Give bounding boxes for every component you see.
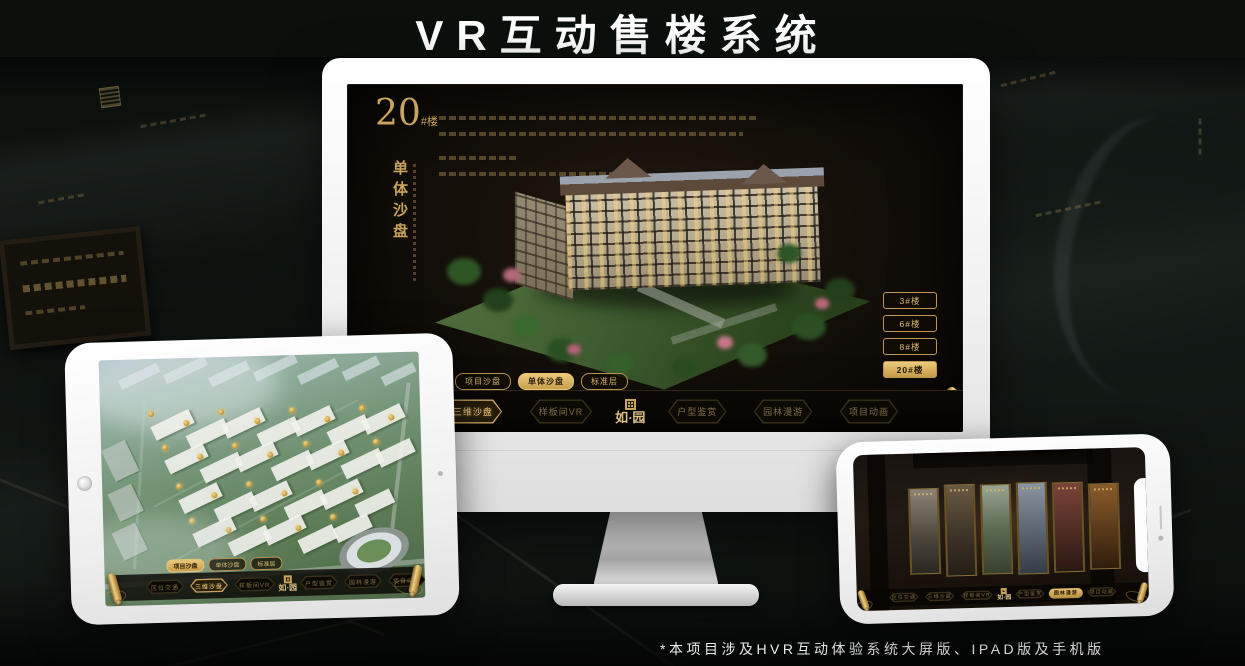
- building-marker[interactable]: [359, 405, 365, 411]
- nav-item-区位交通[interactable]: 区位交通: [887, 592, 921, 603]
- nav-item-label: 户型鉴赏: [677, 405, 717, 418]
- building-marker[interactable]: [254, 418, 260, 424]
- building-marker[interactable]: [232, 443, 238, 449]
- tree: [717, 336, 733, 349]
- tree: [607, 353, 633, 374]
- app-logo[interactable]: 如·园: [997, 588, 1011, 601]
- map-label-dashes: [1001, 70, 1060, 87]
- building-marker[interactable]: [148, 411, 154, 417]
- nav-item-项目动画[interactable]: 项目动画: [1085, 586, 1119, 597]
- tree: [792, 313, 826, 340]
- map-seal-logo-icon: [99, 86, 122, 109]
- view-tab-group: 项目沙盘单体沙盘标准层: [455, 373, 628, 390]
- nav-item-label: 样板间VR: [239, 579, 271, 589]
- scene-panel[interactable]: [1016, 482, 1050, 575]
- aerial-building: [362, 403, 406, 434]
- aerial-building: [342, 355, 381, 380]
- ipad-device: 项目沙盘单体沙盘标准层 区位交通三维沙盘样板间VR如·园户型鉴赏园林漫游项目动画: [64, 333, 460, 626]
- logo-text: 如·园: [278, 584, 297, 593]
- building-marker[interactable]: [197, 454, 203, 460]
- phone-screen: 区位交通三维沙盘样板间VR如·园户型鉴赏园林漫游项目动画: [853, 447, 1149, 611]
- nav-item-label: 区位交通: [151, 582, 179, 592]
- nav-item-样板间VR[interactable]: 样板间VR: [525, 399, 598, 425]
- block-number: 20#楼: [375, 96, 438, 132]
- app-logo[interactable]: 如·园: [278, 575, 297, 593]
- model-building-front: [565, 184, 820, 291]
- view-tab-标准层[interactable]: 标准层: [581, 373, 628, 390]
- nav-item-三维沙盘[interactable]: 三维沙盘: [187, 577, 231, 593]
- building-marker[interactable]: [316, 480, 322, 486]
- nav-item-label: 三维沙盘: [195, 581, 223, 591]
- aerial-building: [102, 440, 140, 482]
- nav-item-园林漫游[interactable]: 园林漫游: [341, 573, 385, 589]
- camera-dot: [438, 471, 443, 476]
- aerial-building: [380, 362, 416, 386]
- map-river: [1024, 101, 1245, 413]
- building-marker[interactable]: [289, 407, 295, 413]
- tree: [513, 316, 539, 337]
- app-logo[interactable]: 如·园: [615, 399, 645, 424]
- scene-panel[interactable]: [944, 484, 978, 577]
- building-marker[interactable]: [162, 445, 168, 451]
- seal-icon: [283, 575, 291, 583]
- nav-item-园林漫游[interactable]: 园林漫游: [749, 399, 817, 425]
- description-line: [439, 132, 743, 136]
- aerial-building: [297, 358, 339, 385]
- map-label-dashes: [140, 113, 209, 128]
- tree: [737, 343, 767, 367]
- monitor-stand-neck: [594, 512, 718, 588]
- scene-panel[interactable]: [908, 488, 941, 575]
- interior-column: [867, 454, 889, 610]
- nav-item-户型鉴赏[interactable]: 户型鉴赏: [1013, 588, 1047, 599]
- view-tab-项目沙盘[interactable]: 项目沙盘: [455, 373, 511, 390]
- description-line: [439, 116, 759, 120]
- nav-item-园林漫游[interactable]: 园林漫游: [1049, 587, 1083, 598]
- nav-item-label: 项目动画: [849, 405, 889, 418]
- camera-dot: [1158, 536, 1163, 541]
- building-marker[interactable]: [373, 439, 379, 445]
- nav-item-label: 区位交通: [892, 594, 916, 602]
- building-marker[interactable]: [176, 484, 182, 490]
- nav-item-样板间VR[interactable]: 样板间VR: [958, 590, 995, 601]
- building-marker[interactable]: [338, 450, 344, 456]
- nav-item-label: 园林漫游: [349, 576, 377, 586]
- block-subtitle-english: [413, 164, 416, 284]
- nav-item-label: 户型鉴赏: [1018, 590, 1042, 598]
- aerial-building: [375, 438, 416, 468]
- block-unit: #楼: [421, 116, 438, 128]
- floor-button-20#楼[interactable]: 20#楼: [883, 361, 937, 378]
- page-title: VR互动售楼系统: [0, 2, 1245, 63]
- scene-panel[interactable]: [1052, 482, 1086, 573]
- nav-item-户型鉴赏[interactable]: 户型鉴赏: [663, 399, 731, 425]
- tree: [777, 244, 801, 263]
- building-marker[interactable]: [246, 482, 252, 488]
- scene-gallery: [908, 480, 1121, 578]
- nav-item-label: 园林漫游: [1054, 589, 1078, 597]
- building-marker[interactable]: [184, 420, 190, 426]
- nav-item-样板间VR[interactable]: 样板间VR: [231, 576, 279, 592]
- seal-icon: [1001, 588, 1007, 594]
- building-model[interactable]: [417, 148, 897, 392]
- nav-item-label: 三维沙盘: [928, 593, 952, 601]
- building-marker[interactable]: [388, 414, 394, 420]
- footnote: *本项目涉及HVR互动体验系统大屏版、IPAD版及手机版: [660, 639, 1105, 659]
- view-tab-单体沙盘[interactable]: 单体沙盘: [208, 557, 246, 571]
- ipad-screen: 项目沙盘单体沙盘标准层 区位交通三维沙盘样板间VR如·园户型鉴赏园林漫游项目动画: [99, 352, 426, 607]
- speaker-slit: [1159, 506, 1162, 530]
- tree: [483, 288, 513, 312]
- scene-panel[interactable]: [980, 484, 1014, 575]
- page: VR互动售楼系统 20#楼 单体沙盘: [0, 0, 1245, 666]
- floor-button-8#楼[interactable]: 8#楼: [883, 338, 937, 355]
- view-tab-标准层[interactable]: 标准层: [250, 556, 282, 570]
- nav-item-三维沙盘[interactable]: 三维沙盘: [923, 591, 957, 602]
- nav-item-label: 园林漫游: [763, 405, 803, 418]
- building-marker[interactable]: [268, 452, 274, 458]
- nav-item-label: 样板间VR: [963, 591, 990, 599]
- scene-panel[interactable]: [1088, 483, 1121, 570]
- nav-item-区位交通[interactable]: 区位交通: [143, 579, 187, 595]
- logo-text: 如·园: [997, 595, 1011, 601]
- view-tab-项目沙盘[interactable]: 项目沙盘: [166, 559, 204, 573]
- nav-item-项目动画[interactable]: 项目动画: [835, 399, 903, 425]
- building-marker[interactable]: [303, 441, 309, 447]
- home-button: [77, 476, 92, 491]
- seal-icon: [625, 399, 636, 410]
- building-marker[interactable]: [352, 489, 358, 495]
- floor-button-3#楼[interactable]: 3#楼: [883, 292, 937, 309]
- interior-eave: [913, 449, 1093, 469]
- tree: [825, 278, 855, 302]
- block-subtitle: 单体沙盘: [389, 160, 410, 320]
- nav-item-label: 项目动画: [1090, 588, 1114, 596]
- model-building-side: [515, 192, 573, 301]
- tree: [447, 258, 481, 285]
- nav-item-户型鉴赏[interactable]: 户型鉴赏: [297, 574, 341, 590]
- nav-item-label: 三维沙盘: [453, 405, 493, 418]
- floor-button-6#楼[interactable]: 6#楼: [883, 315, 937, 332]
- award-plaque: [0, 226, 151, 350]
- building-marker[interactable]: [324, 416, 330, 422]
- building-marker[interactable]: [295, 525, 301, 531]
- building-marker[interactable]: [260, 516, 266, 522]
- phone-device: 区位交通三维沙盘样板间VR如·园户型鉴赏园林漫游项目动画: [836, 433, 1175, 624]
- nav-item-label: 户型鉴赏: [305, 578, 333, 588]
- view-tab-单体沙盘[interactable]: 单体沙盘: [518, 373, 574, 390]
- nav-item-label: 样板间VR: [539, 405, 584, 418]
- map-label-dashes: [38, 193, 88, 205]
- tree: [672, 358, 696, 377]
- building-marker[interactable]: [330, 514, 336, 520]
- phone-notch: [1134, 478, 1149, 572]
- monitor-stand-base: [553, 584, 759, 606]
- floor-button-group: 3#楼6#楼8#楼20#楼: [883, 292, 937, 378]
- logo-text: 如·园: [615, 411, 645, 424]
